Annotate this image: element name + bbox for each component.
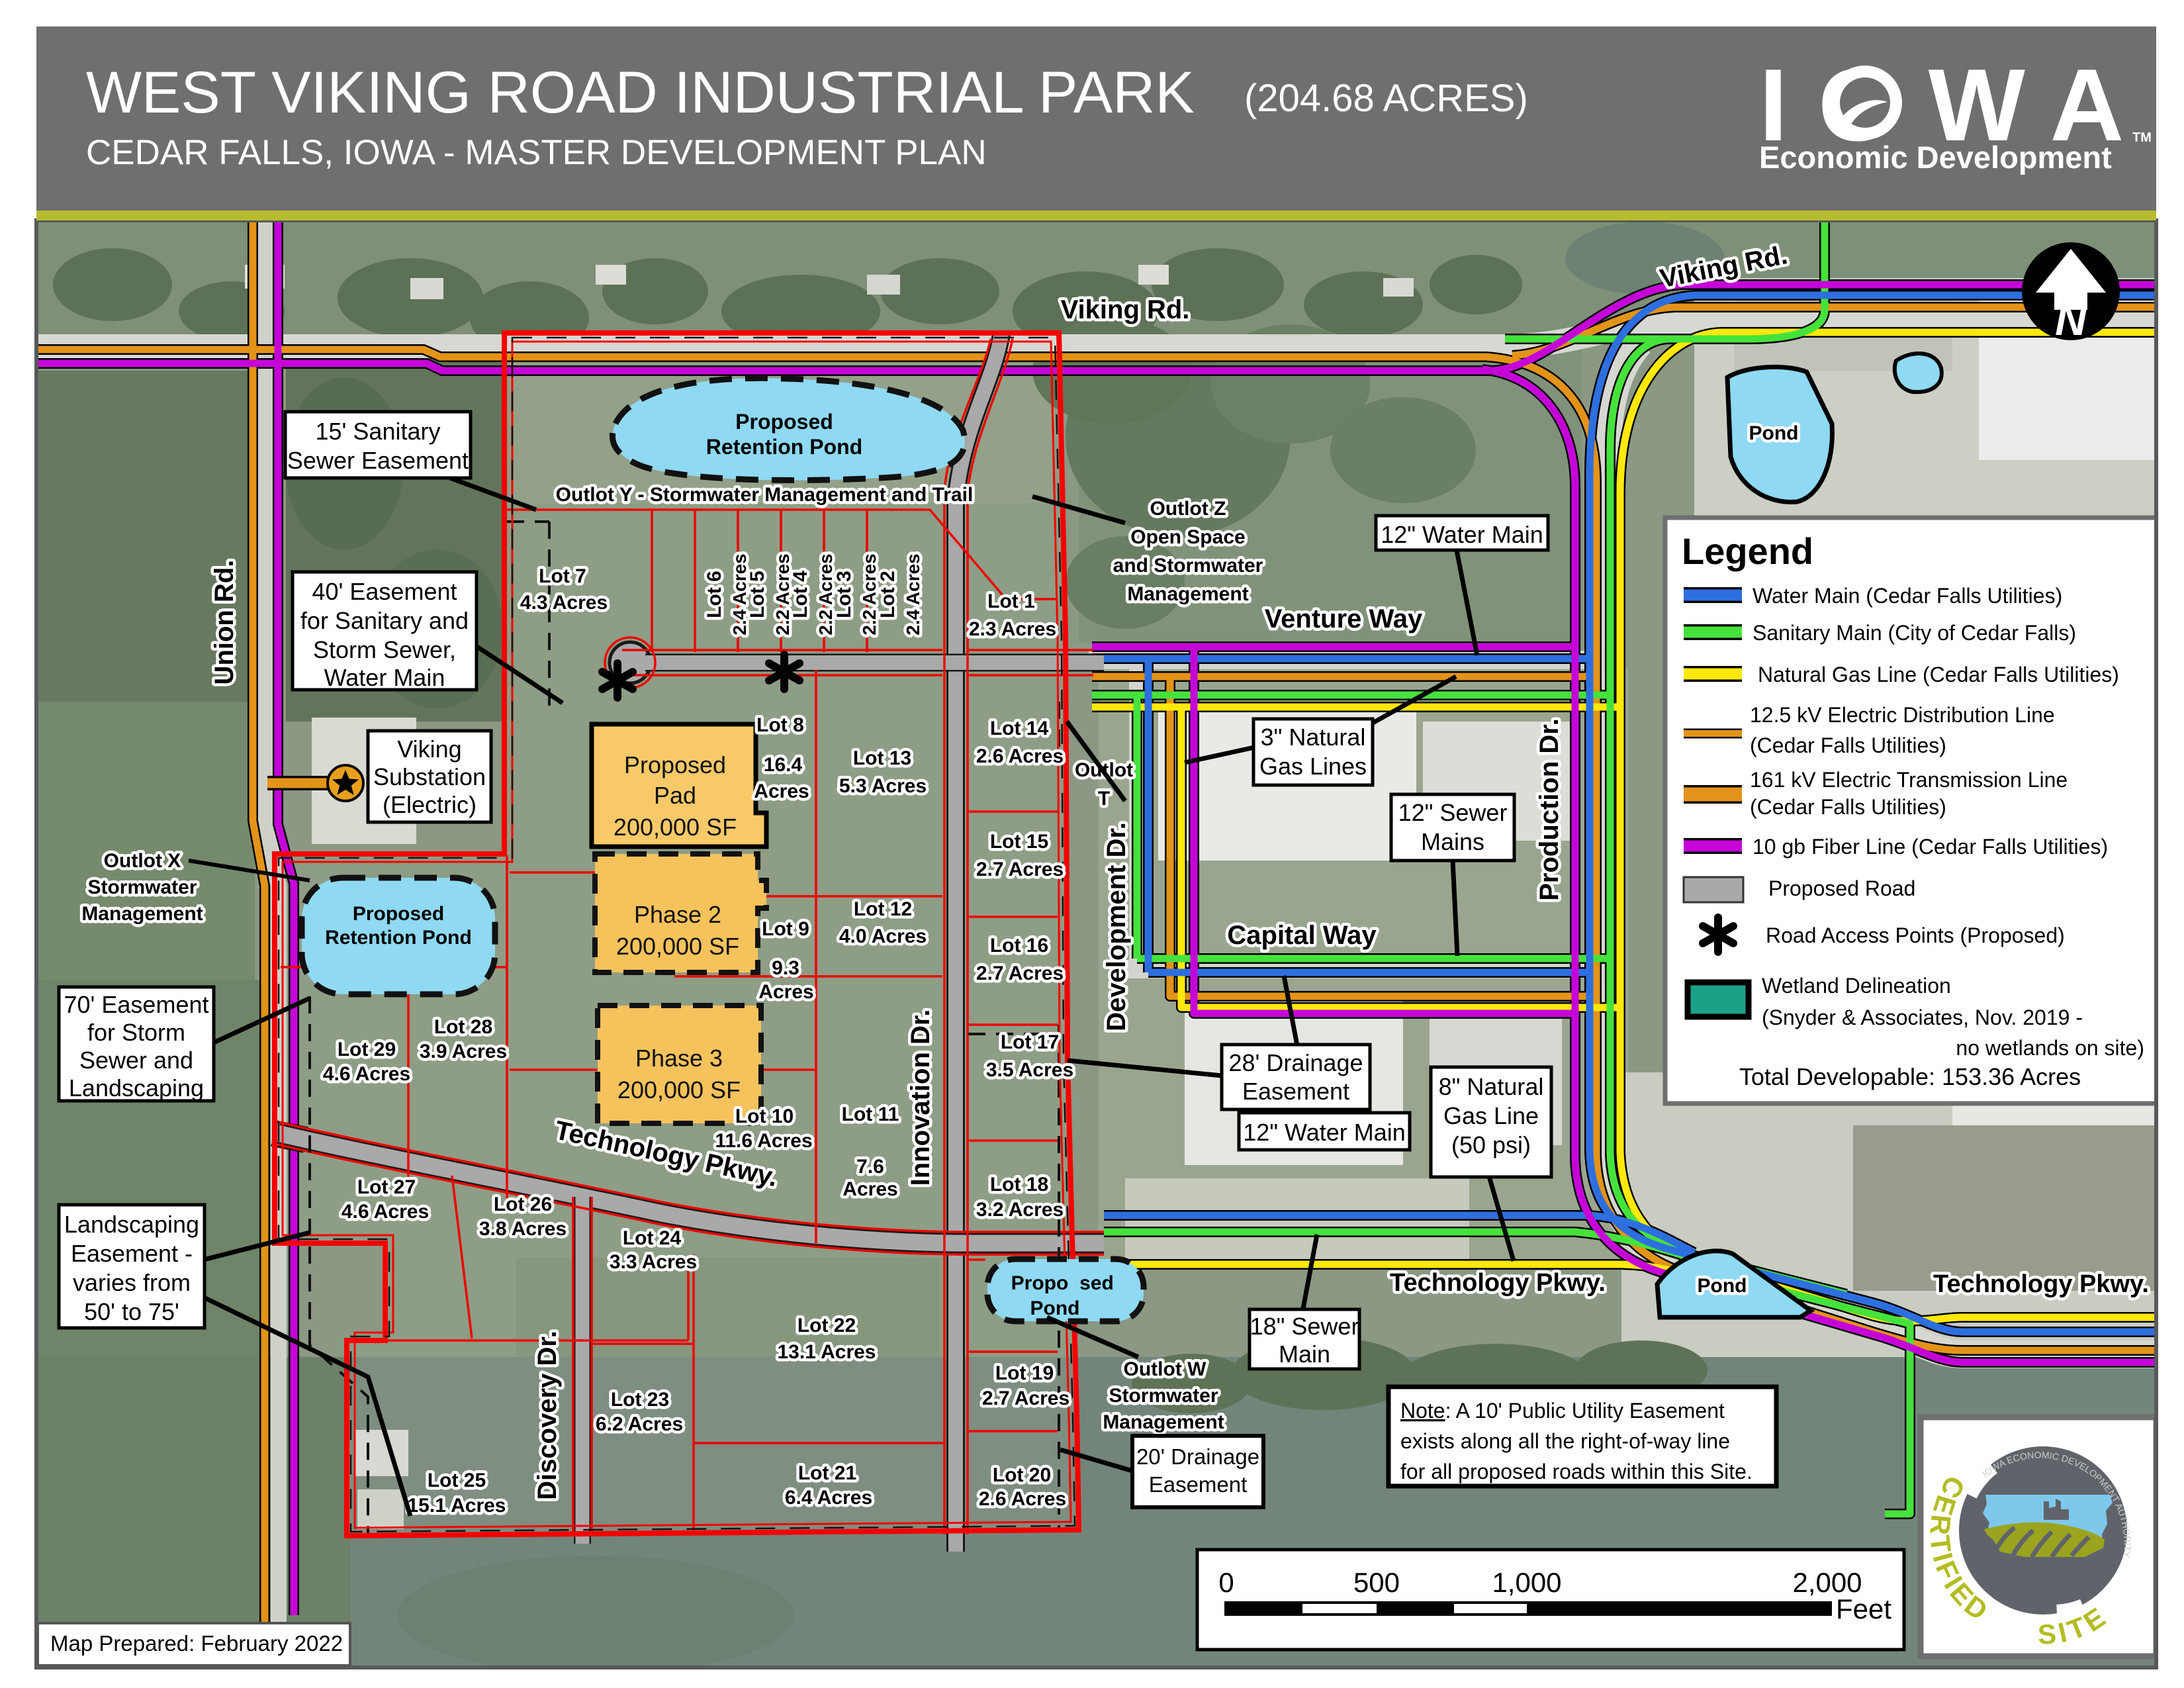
- svg-text:Outlot Z: Outlot Z: [1150, 498, 1226, 520]
- svg-text:20' Drainage: 20' Drainage: [1136, 1444, 1259, 1469]
- svg-text:Lot 11: Lot 11: [842, 1103, 899, 1125]
- svg-text:CEDAR FALLS, IOWA - MASTER DEV: CEDAR FALLS, IOWA - MASTER DEVELOPMENT P…: [86, 133, 987, 172]
- svg-text:Retention Pond: Retention Pond: [706, 435, 862, 459]
- svg-text:for Sanitary and: for Sanitary and: [300, 607, 469, 634]
- svg-text:Viking: Viking: [397, 735, 461, 763]
- svg-text:15' Sanitary: 15' Sanitary: [316, 418, 441, 445]
- svg-text:Water Main: Water Main: [324, 664, 445, 691]
- svg-text:Easement: Easement: [1242, 1078, 1349, 1105]
- svg-text:(50 psi): (50 psi): [1451, 1131, 1531, 1158]
- svg-text:Acres: Acres: [842, 1178, 897, 1200]
- svg-text:40' Easement: 40' Easement: [312, 578, 457, 605]
- svg-text:Easement -: Easement -: [71, 1240, 193, 1267]
- svg-text:Pond: Pond: [1698, 1275, 1747, 1297]
- svg-text:3.2 Acres: 3.2 Acres: [976, 1199, 1064, 1221]
- svg-text:Landscaping: Landscaping: [69, 1074, 204, 1102]
- svg-text:Lot 8: Lot 8: [756, 714, 804, 736]
- svg-text:(Cedar Falls Utilities): (Cedar Falls Utilities): [1750, 795, 1946, 819]
- svg-text:Lot 4: Lot 4: [790, 571, 811, 618]
- svg-text:2.7 Acres: 2.7 Acres: [982, 1387, 1069, 1409]
- svg-text:Storm Sewer,: Storm Sewer,: [313, 636, 456, 663]
- svg-text:Phase 2: Phase 2: [634, 901, 721, 928]
- svg-text:Capital Way: Capital Way: [1227, 921, 1377, 950]
- svg-text:Lot 18: Lot 18: [990, 1174, 1048, 1196]
- svg-text:Lot 3: Lot 3: [833, 571, 855, 618]
- svg-text:12" Water Main: 12" Water Main: [1381, 521, 1543, 548]
- svg-text:50' to 75': 50' to 75': [84, 1298, 179, 1325]
- svg-text:Lot 1: Lot 1: [987, 590, 1035, 612]
- svg-text:Gas Lines: Gas Lines: [1259, 753, 1367, 780]
- svg-text:12" Sewer: 12" Sewer: [1398, 799, 1508, 826]
- svg-text:Outlot W: Outlot W: [1124, 1358, 1207, 1380]
- svg-text:TM: TM: [2132, 130, 2152, 145]
- svg-text:Lot 22: Lot 22: [797, 1315, 856, 1336]
- svg-text:Legend: Legend: [1682, 530, 1813, 572]
- svg-text:Lot 17: Lot 17: [1001, 1031, 1059, 1053]
- svg-text:Natural Gas Line (Cedar Falls: Natural Gas Line (Cedar Falls Utilities): [1758, 663, 2119, 686]
- svg-text:Main: Main: [1279, 1340, 1330, 1368]
- svg-text:and Stormwater: and Stormwater: [1113, 555, 1263, 577]
- svg-text:6.2 Acres: 6.2 Acres: [596, 1413, 683, 1435]
- svg-text:Water Main (Cedar Falls Utilit: Water Main (Cedar Falls Utilities): [1752, 584, 2062, 608]
- svg-text:Lot 27: Lot 27: [357, 1176, 416, 1198]
- svg-text:15.1 Acres: 15.1 Acres: [407, 1495, 506, 1517]
- svg-text:2.6 Acres: 2.6 Acres: [979, 1488, 1066, 1510]
- svg-text:Sanitary Main (City of Cedar F: Sanitary Main (City of Cedar Falls): [1752, 621, 2076, 645]
- svg-text:(204.68 ACRES): (204.68 ACRES): [1244, 77, 1528, 120]
- svg-text:Economic Development: Economic Development: [1759, 140, 2112, 175]
- svg-text:Stormwater: Stormwater: [1109, 1385, 1218, 1407]
- svg-text:8" Natural: 8" Natural: [1439, 1073, 1544, 1100]
- svg-text:Pond: Pond: [1030, 1297, 1080, 1319]
- svg-text:Phase 3: Phase 3: [635, 1045, 723, 1072]
- svg-text:Landscaping: Landscaping: [64, 1211, 199, 1238]
- svg-text:Lot 9: Lot 9: [762, 918, 809, 940]
- svg-text:5.3 Acres: 5.3 Acres: [839, 775, 927, 797]
- svg-text:2.4 Acres: 2.4 Acres: [903, 553, 923, 635]
- svg-text:no wetlands on site): no wetlands on site): [1956, 1036, 2144, 1060]
- svg-text:Lot 6: Lot 6: [704, 571, 725, 618]
- svg-text:Lot 29: Lot 29: [338, 1039, 396, 1060]
- svg-text:Retention Pond: Retention Pond: [325, 927, 472, 949]
- svg-text:2.7 Acres: 2.7 Acres: [976, 962, 1064, 984]
- svg-text:Lot 5: Lot 5: [747, 571, 768, 618]
- svg-text:Lot 21: Lot 21: [798, 1462, 856, 1484]
- svg-text:6.4 Acres: 6.4 Acres: [785, 1487, 872, 1509]
- svg-text:161 kV Electric Transmission L: 161 kV Electric Transmission Line: [1750, 768, 2068, 792]
- svg-text:200,000 SF: 200,000 SF: [614, 814, 737, 841]
- svg-text:Lot 13: Lot 13: [853, 747, 911, 769]
- svg-text:Technology Pkwy.: Technology Pkwy.: [1390, 1269, 1606, 1297]
- svg-text:Lot 14: Lot 14: [990, 718, 1049, 739]
- svg-text:Lot 15: Lot 15: [990, 831, 1048, 853]
- svg-text:(Electric): (Electric): [383, 791, 477, 818]
- svg-text:T: T: [1098, 788, 1110, 810]
- svg-text:Discovery Dr.: Discovery Dr.: [533, 1331, 562, 1500]
- svg-text:12" Water Main: 12" Water Main: [1243, 1119, 1406, 1146]
- svg-text:4.6 Acres: 4.6 Acres: [341, 1201, 429, 1223]
- svg-text:Proposed: Proposed: [624, 751, 726, 778]
- svg-text:Production Dr.: Production Dr.: [1535, 718, 1564, 901]
- svg-text:exists along all the right-of-: exists along all the right-of-way line: [1400, 1429, 1730, 1453]
- svg-text:18" Sewer: 18" Sewer: [1250, 1313, 1359, 1340]
- svg-text:16.4: 16.4: [764, 754, 803, 776]
- svg-text:Proposed Road: Proposed Road: [1768, 876, 1915, 900]
- svg-text:Lot 12: Lot 12: [854, 898, 912, 920]
- svg-text:Stormwater: Stormwater: [87, 876, 197, 898]
- svg-text:Lot 20: Lot 20: [993, 1464, 1051, 1486]
- svg-text:Mains: Mains: [1421, 828, 1484, 855]
- svg-text:Total Developable: 153.36 Acre: Total Developable: 153.36 Acres: [1739, 1063, 2081, 1090]
- svg-text:Easement: Easement: [1149, 1472, 1248, 1497]
- svg-text:for Storm: for Storm: [87, 1019, 185, 1046]
- svg-text:500: 500: [1353, 1567, 1400, 1598]
- svg-text:2.7 Acres: 2.7 Acres: [976, 859, 1064, 880]
- svg-text:Outlot X: Outlot X: [104, 850, 181, 872]
- svg-text:Wetland Delineation: Wetland Delineation: [1762, 974, 1951, 998]
- svg-text:12.5 kV Electric Distribution: 12.5 kV Electric Distribution Line: [1750, 703, 2055, 727]
- svg-text:Lot 7: Lot 7: [539, 565, 586, 587]
- svg-text:Lot 28: Lot 28: [434, 1016, 492, 1038]
- svg-text:Acres: Acres: [754, 780, 809, 802]
- svg-text:Lot 19: Lot 19: [995, 1362, 1054, 1384]
- svg-text:Map Prepared: February 2022: Map Prepared: February 2022: [50, 1631, 343, 1656]
- svg-text:Lot 26: Lot 26: [494, 1194, 552, 1215]
- svg-text:4.3 Acres: 4.3 Acres: [520, 592, 608, 614]
- svg-text:Development Dr.: Development Dr.: [1102, 822, 1131, 1031]
- svg-text:0: 0: [1218, 1567, 1234, 1598]
- svg-text:3.3 Acres: 3.3 Acres: [610, 1251, 697, 1273]
- svg-text:Proposed: Proposed: [735, 410, 833, 434]
- svg-text:varies from: varies from: [73, 1269, 191, 1296]
- svg-text:Technology Pkwy.: Technology Pkwy.: [1933, 1270, 2149, 1298]
- svg-text:Outlot Y - Stormwater Manageme: Outlot Y - Stormwater Management and Tra…: [556, 484, 974, 506]
- svg-text:Management: Management: [81, 903, 203, 925]
- svg-text:Lot 25: Lot 25: [428, 1470, 486, 1491]
- svg-text:Gas Line: Gas Line: [1443, 1102, 1539, 1129]
- svg-text:WEST VIKING ROAD INDUSTRIAL PA: WEST VIKING ROAD INDUSTRIAL PARK: [86, 59, 1195, 125]
- svg-text:4.6 Acres: 4.6 Acres: [323, 1063, 410, 1085]
- svg-text:Open Space: Open Space: [1130, 526, 1245, 548]
- svg-text:10 gb Fiber Line (Cedar Falls: 10 gb Fiber Line (Cedar Falls Utilities): [1752, 835, 2108, 859]
- svg-text:Lot 23: Lot 23: [611, 1389, 669, 1411]
- svg-text:for all proposed roads within: for all proposed roads within this Site.: [1400, 1460, 1752, 1483]
- svg-text:3.5 Acres: 3.5 Acres: [986, 1059, 1073, 1081]
- svg-text:4.0 Acres: 4.0 Acres: [839, 925, 927, 947]
- svg-text:Proposed: Proposed: [353, 903, 444, 925]
- svg-text:Note: A 10' Public Utility Eas: Note: A 10' Public Utility Easement: [1400, 1399, 1725, 1423]
- svg-text:Propo: Propo: [1011, 1272, 1069, 1294]
- svg-text:28' Drainage: 28' Drainage: [1228, 1049, 1363, 1076]
- svg-text:3" Natural: 3" Natural: [1261, 724, 1366, 751]
- svg-text:2.3 Acres: 2.3 Acres: [969, 618, 1056, 640]
- svg-text:Innovation Dr.: Innovation Dr.: [906, 1009, 935, 1186]
- svg-text:Viking Rd.: Viking Rd.: [1061, 295, 1190, 324]
- svg-text:11.6 Acres: 11.6 Acres: [715, 1130, 812, 1152]
- svg-text:Venture Way: Venture Way: [1265, 604, 1423, 633]
- svg-text:3.8 Acres: 3.8 Acres: [479, 1218, 567, 1240]
- svg-text:Feet: Feet: [1836, 1593, 1891, 1624]
- svg-text:(Cedar Falls Utilities): (Cedar Falls Utilities): [1750, 733, 1946, 757]
- svg-text:200,000 SF: 200,000 SF: [617, 1076, 741, 1103]
- svg-text:Lot 2: Lot 2: [877, 571, 899, 618]
- svg-text:Pond: Pond: [1749, 422, 1799, 444]
- svg-text:Sewer Easement: Sewer Easement: [287, 447, 469, 474]
- svg-text:Union Rd.: Union Rd.: [210, 560, 239, 685]
- svg-text:Lot 16: Lot 16: [990, 935, 1048, 957]
- svg-text:200,000 SF: 200,000 SF: [616, 933, 739, 960]
- svg-text:2.6 Acres: 2.6 Acres: [976, 745, 1064, 767]
- svg-text:Management: Management: [1103, 1411, 1224, 1433]
- svg-text:7.6: 7.6: [856, 1156, 884, 1178]
- svg-text:Road Access Points (Proposed): Road Access Points (Proposed): [1766, 923, 2065, 947]
- svg-text:3.9 Acres: 3.9 Acres: [420, 1041, 507, 1062]
- svg-text:Pad: Pad: [654, 782, 696, 809]
- svg-text:9.3: 9.3: [772, 957, 799, 979]
- svg-text:13.1 Acres: 13.1 Acres: [777, 1341, 876, 1363]
- svg-text:70' Easement: 70' Easement: [64, 991, 208, 1018]
- svg-text:Sewer and: Sewer and: [79, 1047, 193, 1074]
- svg-text:Acres: Acres: [758, 981, 813, 1003]
- svg-text:Management: Management: [1127, 583, 1248, 605]
- svg-text:Substation: Substation: [373, 763, 486, 790]
- svg-text:Lot 24: Lot 24: [623, 1227, 682, 1249]
- svg-text:Lot 10: Lot 10: [735, 1105, 794, 1127]
- svg-text:N: N: [2055, 295, 2087, 344]
- svg-text:sed: sed: [1079, 1272, 1114, 1294]
- svg-text:(Snyder & Associates, Nov. 201: (Snyder & Associates, Nov. 2019 -: [1762, 1006, 2083, 1029]
- svg-text:1,000: 1,000: [1492, 1567, 1561, 1598]
